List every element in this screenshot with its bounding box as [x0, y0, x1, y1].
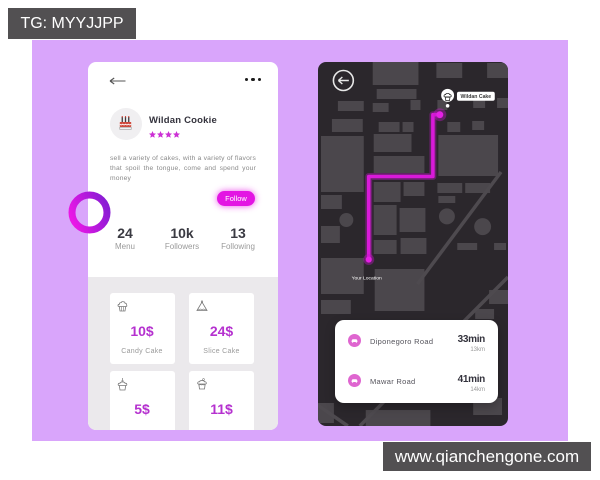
svg-text:Wildan Cake: Wildan Cake: [461, 94, 492, 100]
svg-text:Your Location: Your Location: [352, 275, 382, 281]
